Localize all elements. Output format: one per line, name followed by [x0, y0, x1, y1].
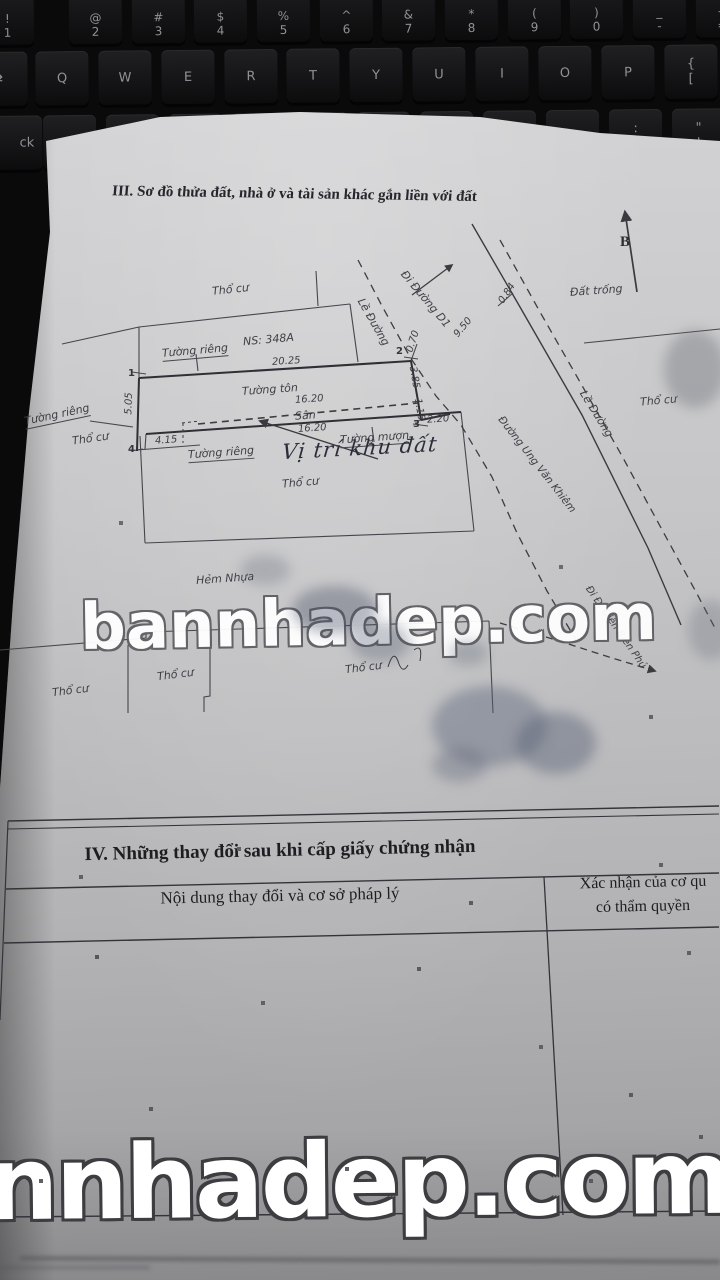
keyboard-key: ( 9: [507, 0, 561, 40]
watermark-bottom: nnhadep.com: [0, 1119, 720, 1244]
point-4: 4: [128, 444, 135, 455]
point-1: 1: [128, 368, 135, 379]
ink-stain: [350, 622, 410, 662]
ink-stain: [432, 748, 487, 782]
ink-stain: [664, 330, 720, 408]
keyboard-key: ! 1: [0, 0, 34, 45]
dim-16-20-upper: 16.20: [295, 393, 324, 406]
ink-stain: [240, 555, 290, 585]
paper-speckles: [0, 0, 2, 2]
dim-2-20: 2.20: [427, 413, 450, 426]
north-label: B: [620, 234, 630, 251]
ink-stain: [448, 640, 488, 666]
keyboard-key: { [: [664, 44, 718, 99]
keyboard-key: ) 0: [569, 0, 623, 39]
keyboard-key: _ -: [632, 0, 686, 38]
keyboard-key: Q: [35, 51, 89, 106]
keyboard-key: @ 2: [69, 0, 123, 44]
page-crease-line: [0, 1266, 150, 1269]
keyboard-key-capslock: ck: [0, 115, 42, 170]
dim-16-20-lower: 16.20: [298, 422, 327, 435]
dim-4-15: 4.15: [155, 434, 178, 447]
keyboard-key: P: [601, 45, 655, 100]
photo-of-land-certificate: ! 1 @ 2 # 3 $ 4 % 5 ^ 6 & 7 * 8 ( 9 ) 0 …: [0, 0, 720, 1280]
dim-5-05: 5.05: [123, 392, 135, 415]
keyboard-key: $ 4: [194, 0, 248, 43]
dim-20-25: 20.25: [272, 355, 301, 368]
keyboard-key: W: [98, 50, 152, 105]
keyboard-key-tab: ⇄: [0, 52, 28, 107]
keyboard-key: R: [224, 49, 278, 104]
keyboard-key: I: [475, 46, 529, 101]
section4-col2-header-line2: có thẩm quyền: [548, 896, 720, 918]
point-3: 3: [413, 419, 420, 430]
keyboard-key: ^ 6: [319, 0, 373, 42]
point-2: 2: [396, 346, 403, 357]
ink-stain: [516, 712, 596, 774]
keyboard-key: % 5: [256, 0, 310, 42]
section4-col2-header-line1: Xác nhận của cơ qu: [548, 872, 720, 894]
keyboard-key: Y: [349, 48, 403, 103]
label-san: Sân: [295, 408, 317, 422]
keyboard-key: * 8: [444, 0, 498, 40]
keyboard-key: & 7: [381, 0, 435, 41]
keyboard-key: U: [412, 47, 466, 102]
keyboard-key: # 3: [132, 0, 186, 43]
keyboard-key: O: [538, 46, 592, 101]
keyboard-key: + =: [695, 0, 720, 38]
keyboard-key: E: [161, 50, 215, 105]
keyboard-key: T: [286, 48, 340, 103]
